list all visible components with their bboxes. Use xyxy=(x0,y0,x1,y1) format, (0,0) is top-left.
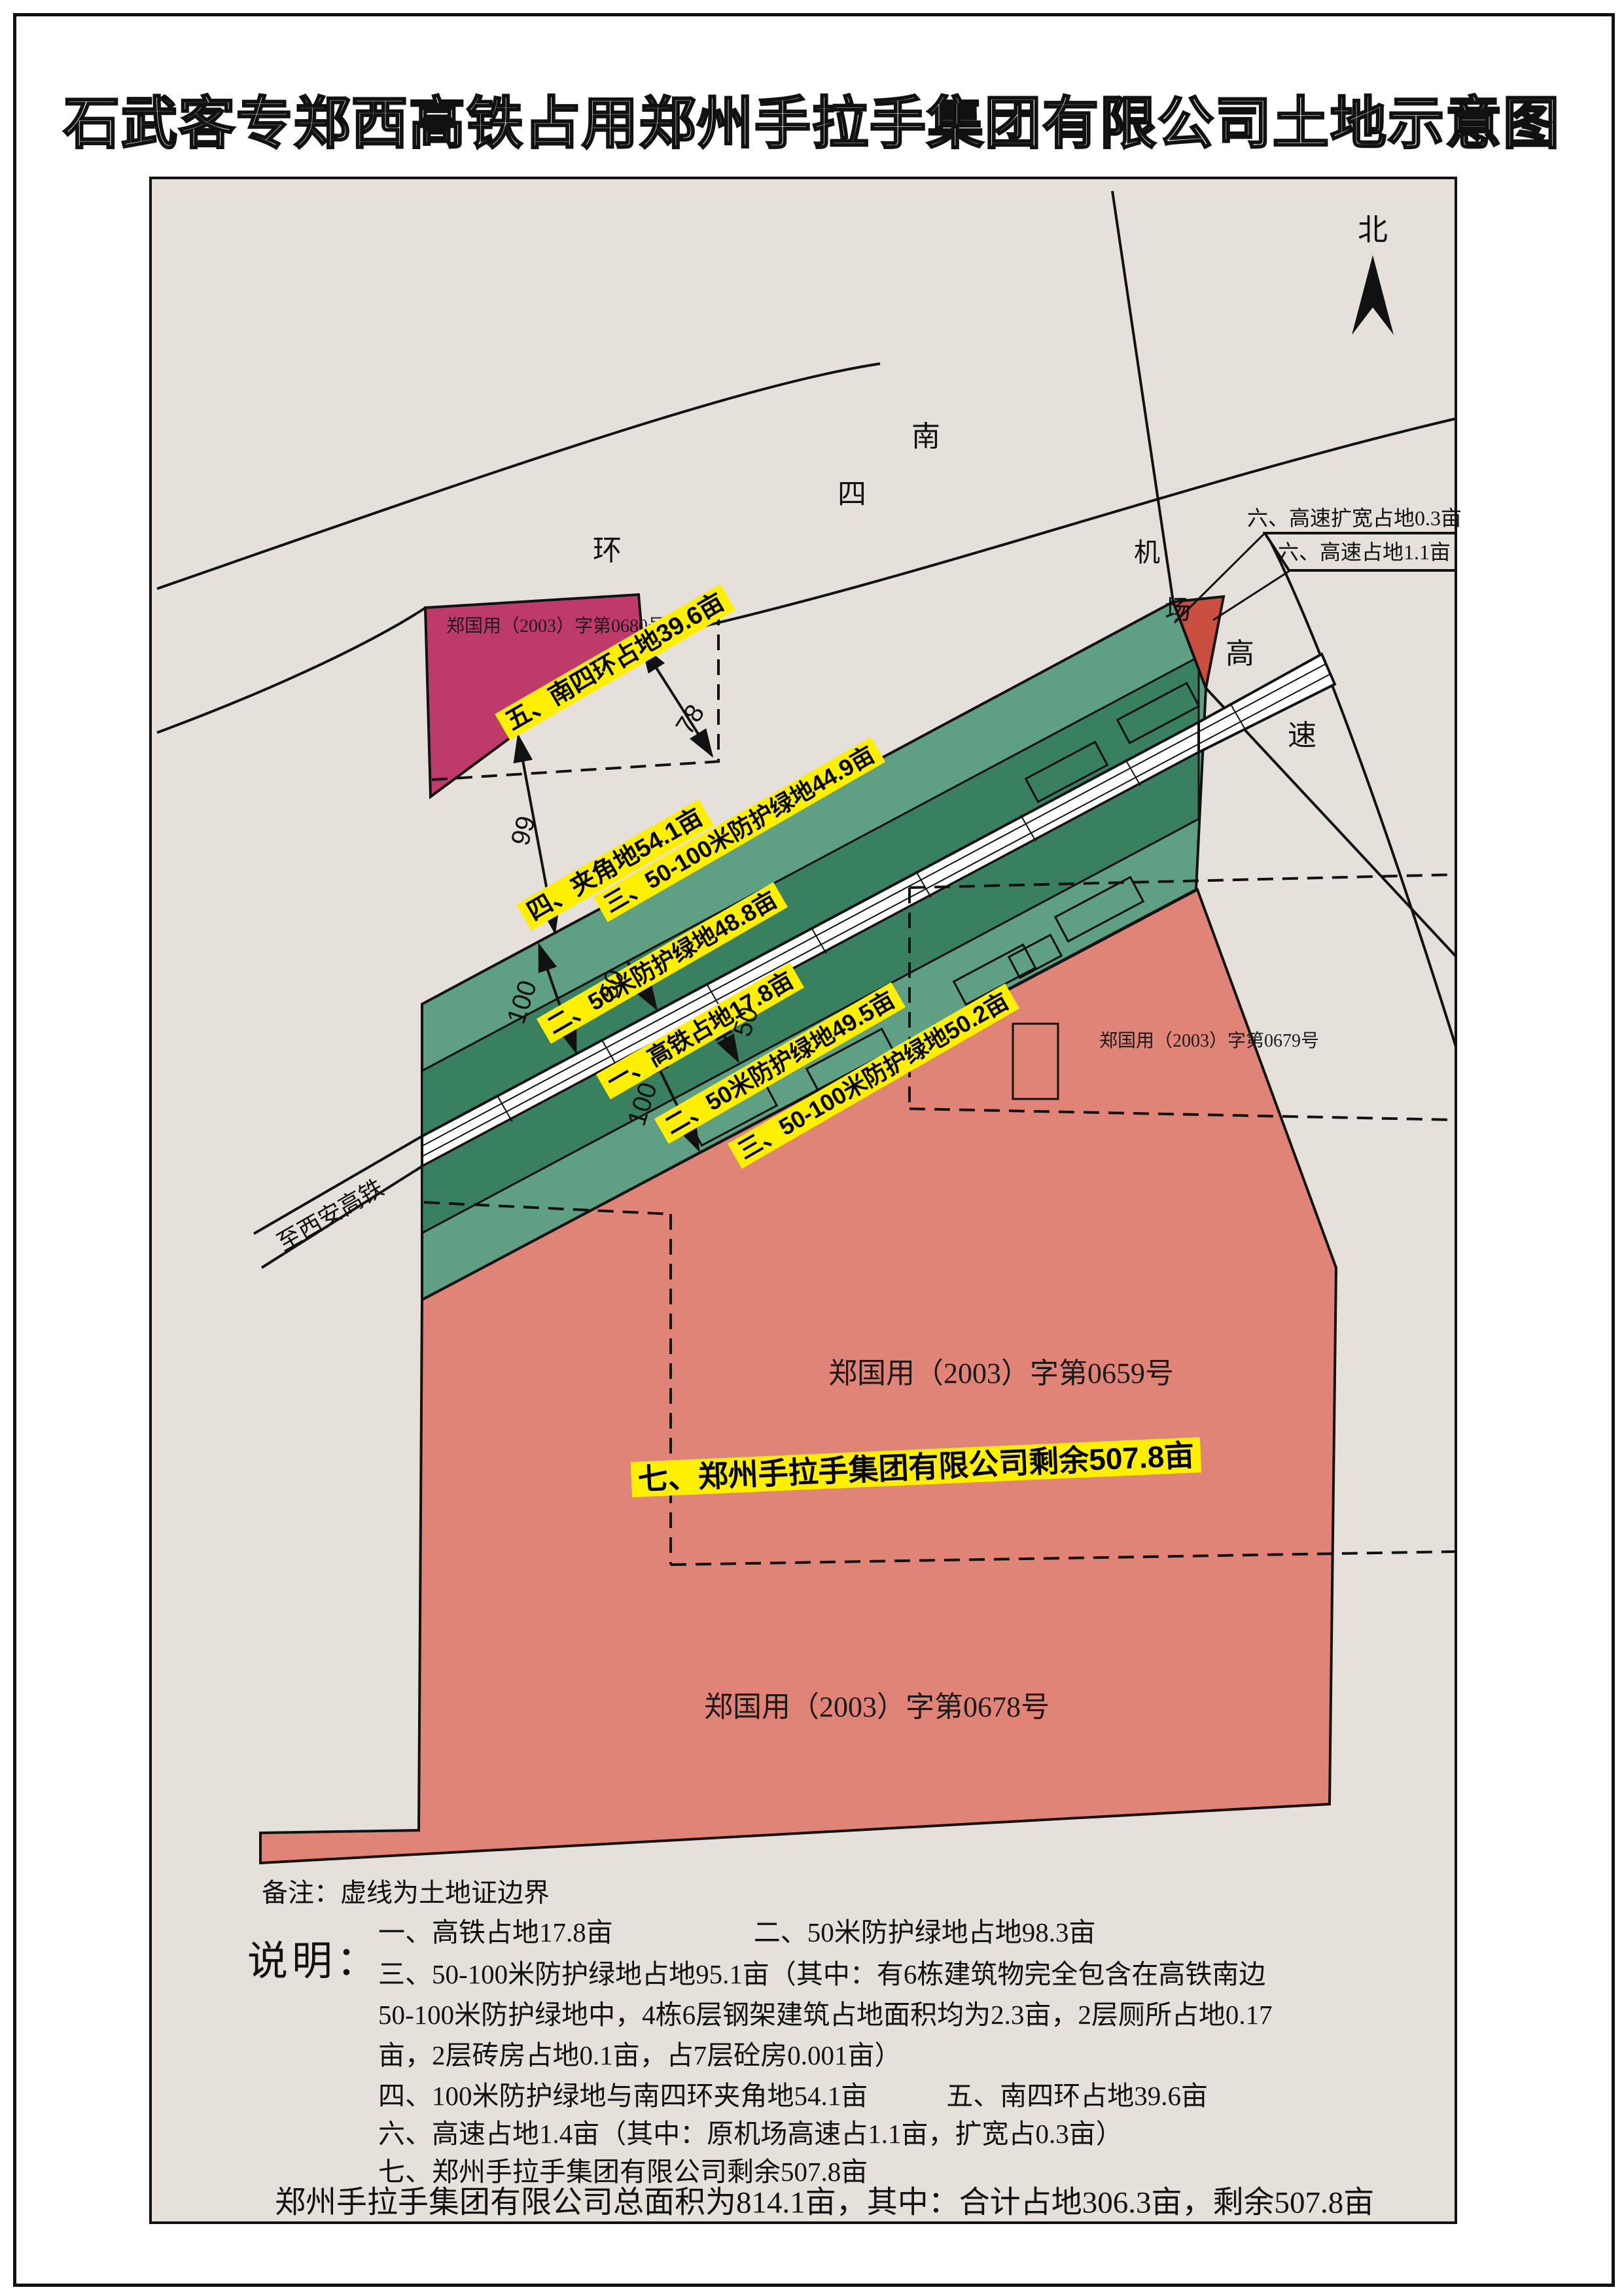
notes-total-line: 郑州手拉手集团有限公司总面积为814.1亩，其中：合计占地306.3亩，剩余50… xyxy=(275,2177,1374,2222)
notes-line-1a: 一、高铁占地17.8亩 xyxy=(378,1917,613,1947)
highway-widen-label: 六、高速扩宽占地0.3亩 xyxy=(1247,508,1462,529)
remark-line: 备注：虚线为土地证边界 xyxy=(262,1871,550,1909)
compass-north-label: 北 xyxy=(1358,215,1388,245)
certificate-0678-label: 郑国用（2003）字第0678号 xyxy=(704,1693,1050,1722)
page: 石武客专郑西高铁占用郑州手拉手集团有限公司土地示意图 xyxy=(0,0,1624,2296)
notes-line-3: 50-100米防护绿地中，4栋6层钢架建筑占地面积均为2.3亩，2层厕所占地0.… xyxy=(378,1992,1273,2032)
road-nansihuan-char-si: 四 xyxy=(838,480,866,509)
notes-line-1: 一、高铁占地17.8亩二、50米防护绿地占地98.3亩 xyxy=(378,1910,1096,1949)
notes-line-5a: 四、100米防护绿地与南四环夹角地54.1亩 xyxy=(378,2081,868,2111)
notes-line-1b: 二、50米防护绿地占地98.3亩 xyxy=(754,1917,1096,1947)
certificate-0679-label: 郑国用（2003）字第0679号 xyxy=(1099,1032,1319,1051)
notes-line-6: 六、高速占地1.4亩（其中：原机场高速占1.1亩，扩宽占0.3亩） xyxy=(378,2112,1123,2151)
road-nansihuan-char-huan: 环 xyxy=(593,536,622,565)
notes-line-5b: 五、南四环占地39.6亩 xyxy=(946,2081,1208,2111)
notes-heading: 说明： xyxy=(247,1928,381,1987)
notes-line-5: 四、100米防护绿地与南四环夹角地54.1亩五、南四环占地39.6亩 xyxy=(378,2074,1208,2113)
notes-line-2: 三、50-100米防护绿地占地95.1亩（其中：有6栋建筑物完全包含在高铁南边 xyxy=(378,1952,1265,1991)
certificate-0680-label: 郑国用（2003）字第0680号 xyxy=(446,617,666,636)
road-gaosu-char-su: 速 xyxy=(1288,722,1316,750)
notes-line-4: 亩，2层砖房占地0.1亩，占7层砼房0.001亩） xyxy=(378,2033,902,2072)
highway-original-label: 六、高速占地1.1亩 xyxy=(1278,542,1451,563)
road-jichang-char-chang: 场 xyxy=(1165,597,1191,623)
road-jichang-char-ji: 机 xyxy=(1134,540,1160,566)
road-gaosu-char-gao: 高 xyxy=(1226,640,1254,669)
certificate-0659-label: 郑国用（2003）字第0659号 xyxy=(828,1359,1174,1388)
road-nansihuan-char-nan: 南 xyxy=(911,423,940,451)
